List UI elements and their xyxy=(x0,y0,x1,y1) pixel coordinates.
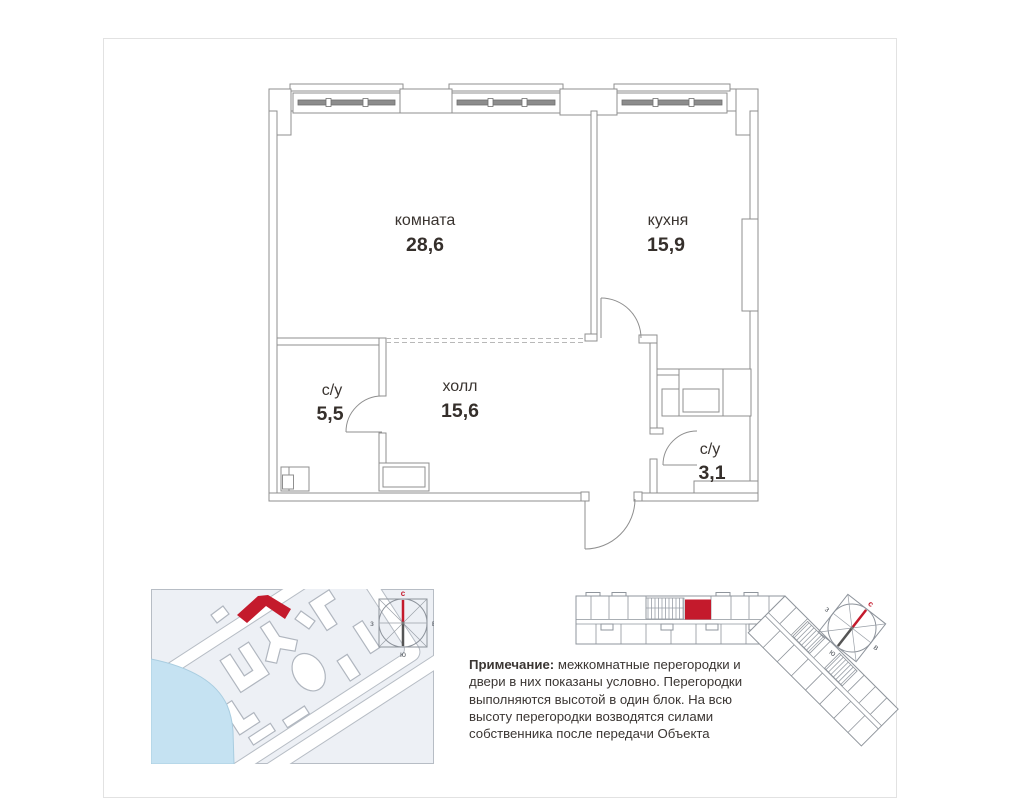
room-area-hall: 15,6 xyxy=(441,400,479,422)
room-label-komnata: комната xyxy=(395,212,456,229)
dashed-partition xyxy=(386,339,585,343)
compass-west-label: з xyxy=(823,605,832,615)
room-kitchen-partition xyxy=(585,111,657,343)
note-text: Примечание: межкомнатные перегородки и д… xyxy=(469,656,769,742)
compass-east-label: в xyxy=(872,643,881,653)
compass-north-label: с xyxy=(866,599,875,609)
room-label-wc2: с/у xyxy=(700,441,720,458)
note-line: Примечание: межкомнатные перегородки и xyxy=(469,656,769,673)
note-line: выполняются высотой в один блок. На всю xyxy=(469,691,769,708)
site-map: с з в ю xyxy=(151,589,434,764)
highlighted-unit xyxy=(685,600,711,620)
floor-plan: комната 28,6 кухня 15,9 с/у 5,5 холл 15,… xyxy=(261,81,781,561)
compass-south-label: ю xyxy=(400,650,406,659)
key-plan-wing xyxy=(748,596,898,746)
plan-sheet: комната 28,6 кухня 15,9 с/у 5,5 холл 15,… xyxy=(103,38,897,798)
compass-west-label: з xyxy=(370,619,374,628)
exterior-walls xyxy=(269,111,758,501)
interior-walls xyxy=(277,338,758,493)
room-area-wc2: 3,1 xyxy=(698,462,725,484)
window-icon xyxy=(293,93,400,113)
room-area-komnata: 28,6 xyxy=(406,234,444,256)
note-line: двери в них показаны условно. Перегородк… xyxy=(469,673,769,690)
window-icon xyxy=(452,93,560,113)
room-labels: комната 28,6 кухня 15,9 с/у 5,5 холл 15,… xyxy=(316,212,725,484)
exterior-top-wall xyxy=(269,84,758,135)
note-line: собственника после передачи Объекта xyxy=(469,725,769,742)
room-area-kitchen: 15,9 xyxy=(647,234,685,256)
note-line: высоту перегородки возводятся силами xyxy=(469,708,769,725)
room-label-hall: холл xyxy=(442,378,477,395)
room-label-wc1: с/у xyxy=(322,382,342,399)
compass-north-label: с xyxy=(401,589,406,598)
window-icon xyxy=(617,93,727,113)
room-label-kitchen: кухня xyxy=(648,212,689,229)
screenshot-root: { "page": { "background": "#ffffff", "bo… xyxy=(0,0,1024,727)
note-label: Примечание: xyxy=(469,657,554,672)
compass-east-label: в xyxy=(432,619,434,628)
room-area-wc1: 5,5 xyxy=(316,403,343,425)
